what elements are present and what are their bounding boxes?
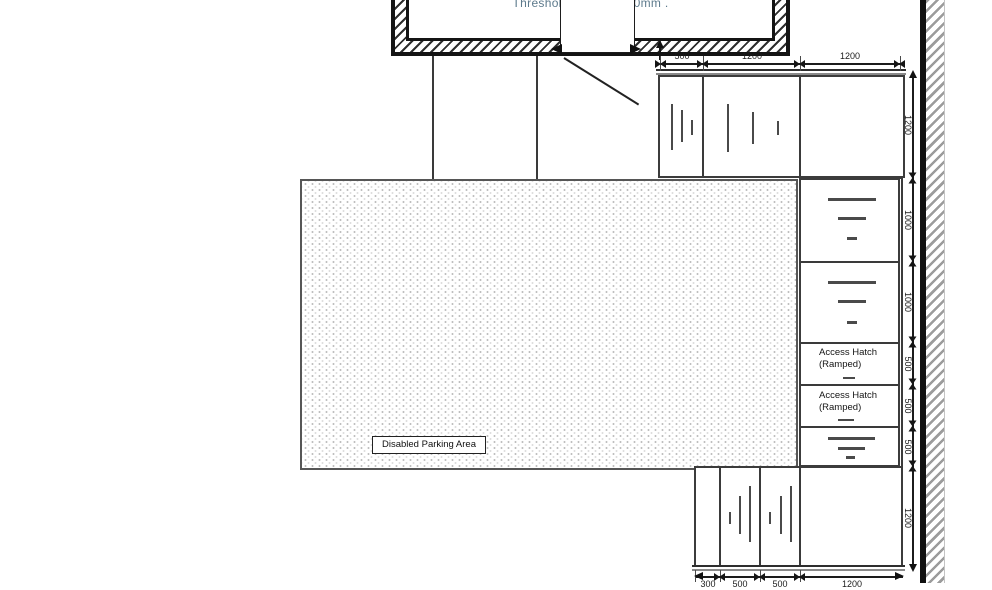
ramp-mark [729,512,731,524]
dim-top-1200b: 1200 [820,51,880,61]
dim-bottom-1200: 1200 [822,579,882,589]
ramp-mark [769,512,771,524]
access-hatch-upper-line1: Access Hatch [819,347,877,359]
slope-mark [828,198,876,201]
top-ramp-row [658,75,905,178]
slope-mark [847,321,857,324]
dim-tick-icon [655,60,666,68]
dim-bottom-500a: 500 [720,579,760,589]
slope-mark [828,437,875,440]
bottom-row-divider-2 [759,468,761,565]
entrance-arrow-up-icon [656,40,664,48]
boundary-wall-hatch [926,0,945,583]
dim-tick-icon [697,60,708,68]
door-opening [560,0,635,53]
dim-bottom-500b: 500 [760,579,800,589]
ramp-mark [739,496,741,534]
ramp-mark [790,486,792,542]
dim-right-1000b: 1000 [903,282,913,322]
dim-right-1000a: 1000 [903,200,913,240]
right-column-divider-2 [801,342,899,344]
dim-top-500: 500 [664,51,700,61]
bottom-row-divider-1 [719,468,721,565]
parking-area-label: Disabled Parking Area [372,436,486,454]
walkway-edge-line-right [536,56,538,180]
ramp-mark [681,110,683,142]
top-row-divider-2 [799,77,801,176]
dim-top-1200a: 1200 [722,51,782,61]
bottom-row-edge-band [692,565,905,571]
slope-mark [828,281,876,284]
ramp-mark [777,121,779,135]
dim-tick-icon [909,173,917,184]
access-hatch-lower-line2: (Ramped) [819,402,877,414]
slope-mark [847,237,857,240]
dim-arrow-icon [895,572,904,580]
dim-right-500a: 500 [903,344,913,384]
access-hatch-upper-label: Access Hatch (Ramped) [819,347,877,371]
dim-tick-icon [909,256,917,267]
dim-right-500b: 500 [903,386,913,426]
ramp-mark [780,496,782,534]
bottom-row-divider-3 [799,468,801,565]
ramp-mark [749,486,751,542]
ramp-mark [752,112,754,144]
dim-right-500c: 500 [903,427,913,467]
slope-mark [838,217,866,220]
right-column-divider-3 [801,384,899,386]
right-column-divider-4 [801,426,899,428]
dim-tick-icon [894,60,905,68]
access-hatch-lower-line1: Access Hatch [819,390,877,402]
door-jamb-arrow-left-icon [551,44,562,54]
slope-mark [843,377,855,379]
top-row-divider-1 [702,77,704,176]
dim-line-top [660,63,900,65]
ramp-mark [727,104,729,152]
walkway-edge-line-left [432,56,434,180]
slope-mark [838,419,854,421]
access-hatch-lower-label: Access Hatch (Ramped) [819,390,877,414]
dim-right-1200b: 1200 [903,498,913,538]
ramp-mark [671,104,673,150]
door-jamb-arrow-right-icon [630,44,641,54]
slope-mark [846,456,855,459]
dim-arrow-icon [909,564,917,572]
site-plan-drawing: Threshold Height +600mm . Disabled Parki… [0,0,992,590]
slope-mark [838,300,866,303]
dim-tick-icon [794,60,805,68]
right-column-divider-1 [801,261,899,263]
dim-arrow-icon [909,70,917,78]
slope-mark [838,447,865,450]
dim-right-1200a: 1200 [903,105,913,145]
disabled-parking-area [300,179,798,470]
door-swing-line [563,57,639,105]
ramp-mark [691,120,693,135]
access-hatch-upper-line2: (Ramped) [819,359,877,371]
